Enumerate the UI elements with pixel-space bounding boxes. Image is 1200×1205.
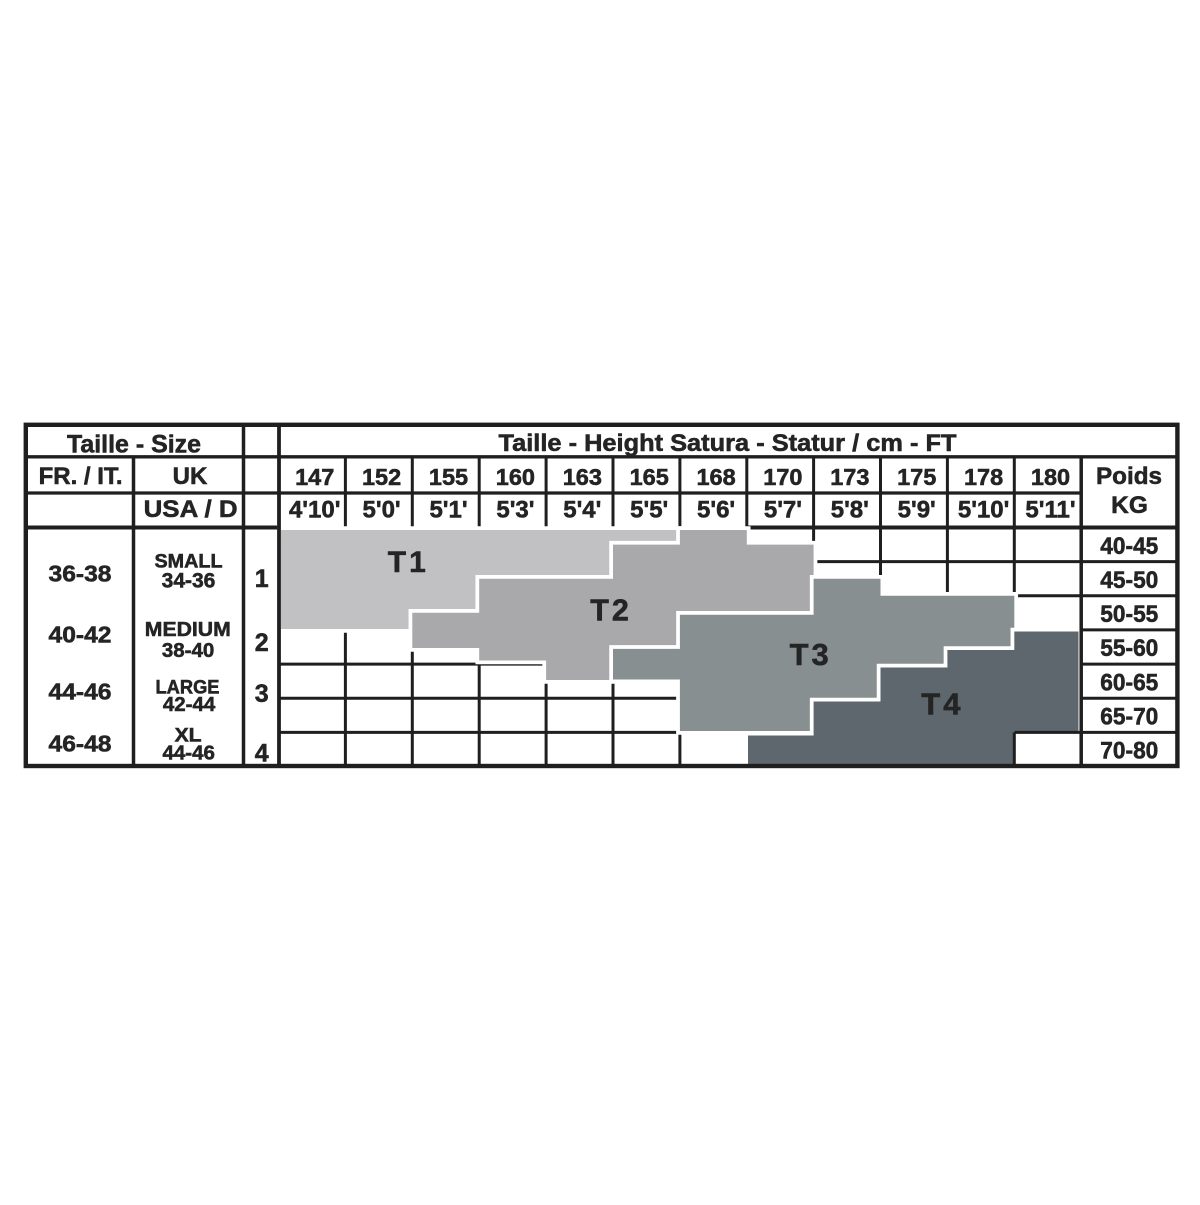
svg-text:163: 163 [563,464,602,490]
svg-text:Taille - Size: Taille - Size [67,431,201,459]
svg-text:160: 160 [496,464,535,490]
svg-text:T2: T2 [590,594,632,628]
svg-text:173: 173 [830,464,869,490]
svg-text:170: 170 [763,464,802,490]
svg-text:165: 165 [630,464,669,490]
svg-text:44-46: 44-46 [162,742,214,765]
svg-text:T4: T4 [921,687,963,722]
svg-text:38-40: 38-40 [162,639,214,662]
svg-text:5'9': 5'9' [898,497,936,524]
svg-text:168: 168 [696,464,735,490]
svg-text:KG: KG [1111,492,1148,519]
svg-text:Poids: Poids [1096,463,1162,490]
svg-text:175: 175 [897,464,936,490]
svg-text:FR. / IT.: FR. / IT. [39,463,123,490]
svg-text:MEDIUM: MEDIUM [145,618,231,641]
svg-text:147: 147 [295,464,334,490]
svg-text:5'1': 5'1' [429,497,467,524]
svg-text:T1: T1 [388,546,429,579]
svg-text:55-60: 55-60 [1100,635,1158,662]
svg-text:70-80: 70-80 [1100,738,1158,765]
svg-text:5'8': 5'8' [831,497,869,524]
svg-text:44-46: 44-46 [49,679,112,705]
svg-text:5'7': 5'7' [764,497,802,524]
svg-text:T3: T3 [790,637,832,672]
svg-text:60-65: 60-65 [1100,669,1158,696]
svg-text:46-48: 46-48 [49,731,112,757]
svg-text:5'4': 5'4' [563,497,601,524]
svg-text:152: 152 [362,464,401,490]
svg-text:36-38: 36-38 [49,560,112,586]
svg-text:65-70: 65-70 [1100,703,1158,730]
svg-text:4: 4 [255,740,269,768]
svg-text:5'5': 5'5' [630,497,668,524]
svg-text:50-55: 50-55 [1100,601,1158,628]
svg-text:42-44: 42-44 [163,693,216,716]
svg-text:40-45: 40-45 [1100,533,1158,560]
svg-text:USA / D: USA / D [144,496,238,523]
svg-text:45-50: 45-50 [1100,567,1158,594]
svg-text:155: 155 [429,464,468,490]
svg-text:UK: UK [173,463,208,490]
svg-text:3: 3 [255,680,269,708]
svg-text:1: 1 [255,565,269,593]
svg-text:4'10': 4'10' [289,497,340,524]
svg-text:40-42: 40-42 [49,622,112,648]
svg-text:2: 2 [255,629,269,657]
svg-text:5'11': 5'11' [1025,497,1075,524]
svg-text:5'6': 5'6' [697,497,735,524]
svg-text:5'0': 5'0' [363,497,401,524]
svg-text:178: 178 [964,464,1003,490]
svg-text:5'3': 5'3' [496,497,534,524]
svg-text:180: 180 [1031,464,1070,490]
svg-text:5'10': 5'10' [958,497,1009,524]
svg-text:34-36: 34-36 [162,569,216,592]
svg-text:Taille - Height Satura - Statu: Taille - Height Satura - Statur / cm - F… [499,430,957,457]
